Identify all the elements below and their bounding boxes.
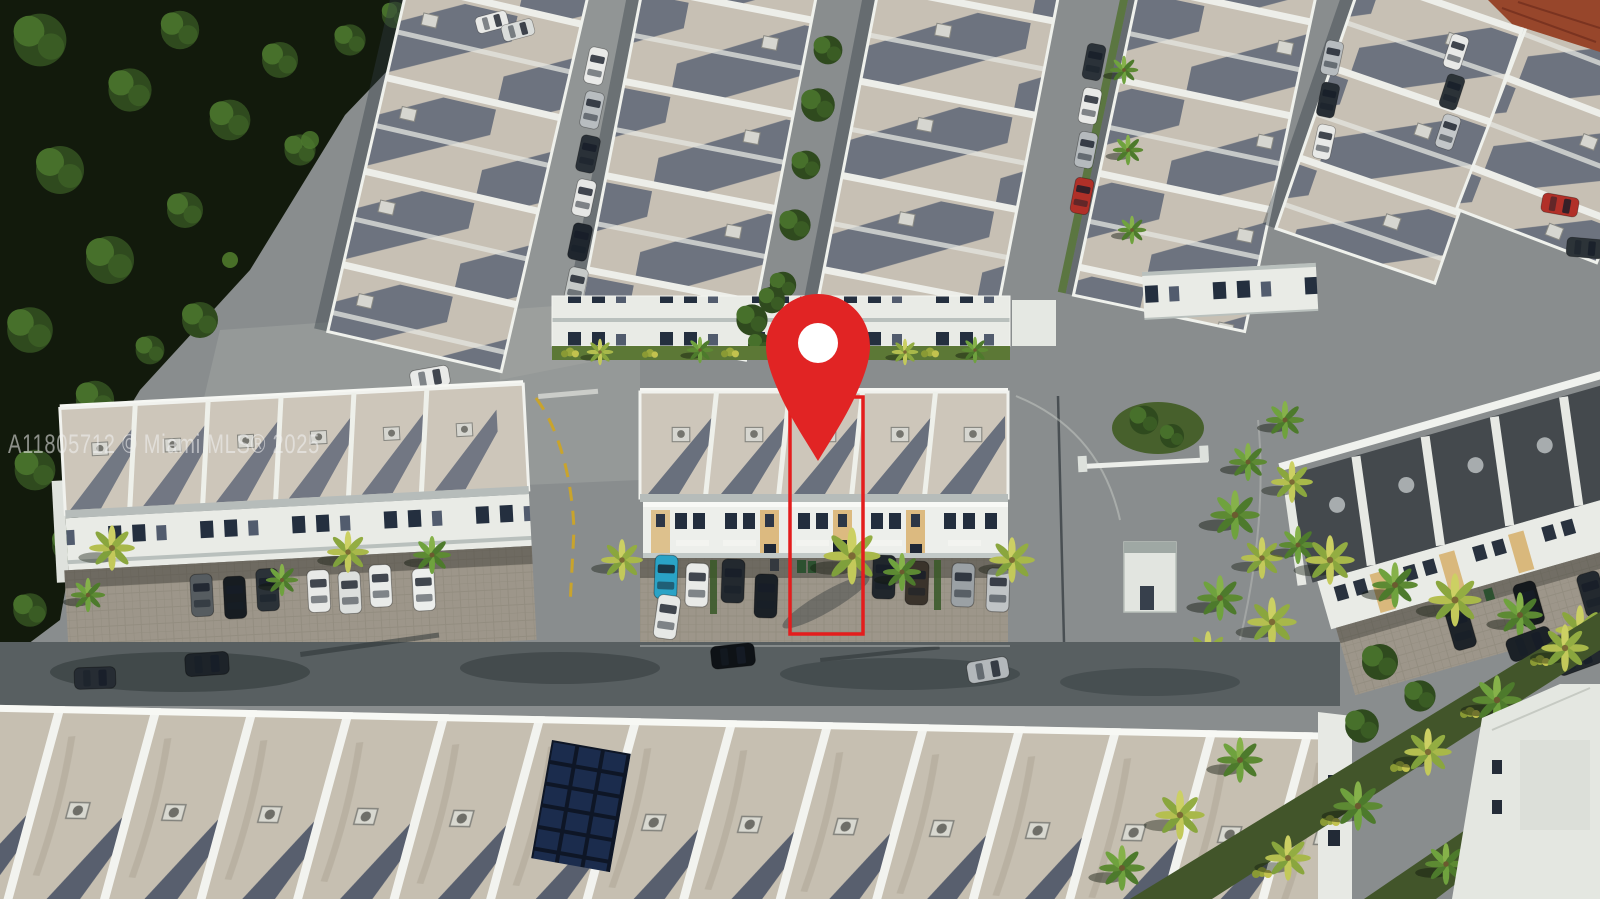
aerial-photo: A11805712 © Miami MLS® 2025	[0, 0, 1600, 899]
featured-facades	[643, 502, 1008, 558]
left-townhouse-row	[48, 380, 537, 665]
map-pin-hole	[798, 323, 838, 363]
guard-booth	[1124, 542, 1176, 612]
mls-watermark: A11805712 © Miami MLS® 2025	[8, 429, 320, 459]
foreground-street	[0, 633, 1340, 706]
